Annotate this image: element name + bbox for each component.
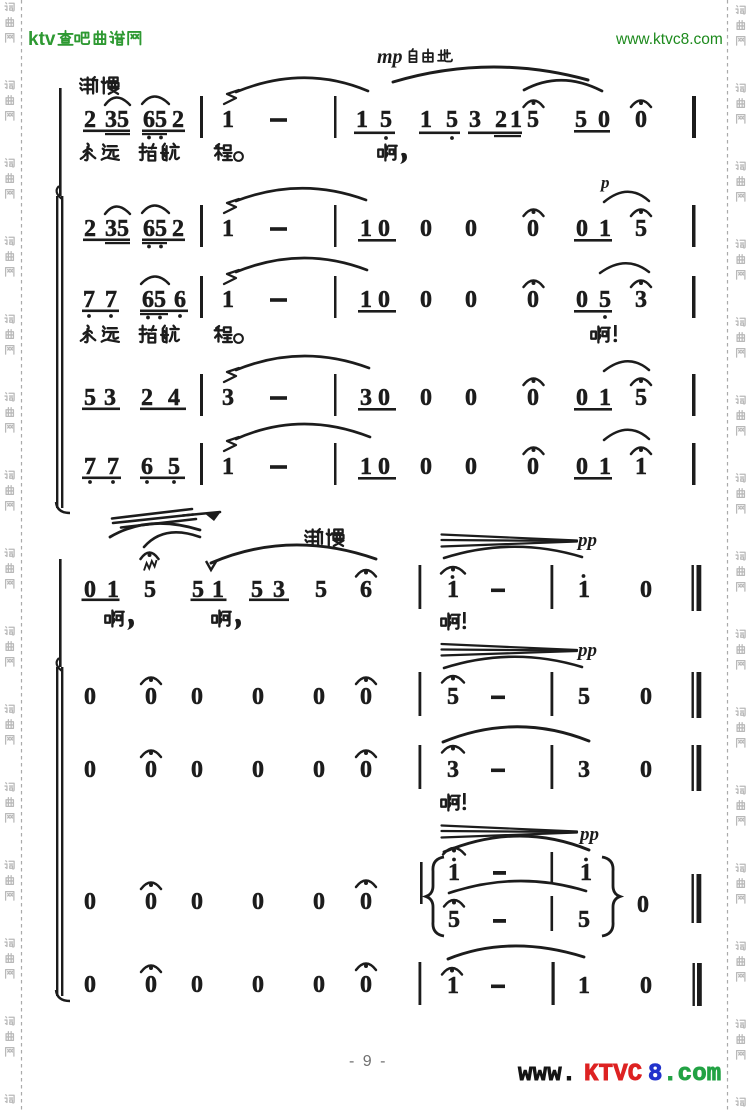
svg-text:1: 1: [578, 973, 590, 999]
svg-text:3: 3: [222, 385, 234, 411]
svg-text:8: 8: [648, 1061, 663, 1088]
svg-text:0: 0: [313, 684, 325, 710]
svg-text:3: 3: [447, 757, 459, 783]
svg-text:6: 6: [360, 577, 372, 603]
svg-text:2: 2: [141, 385, 153, 411]
svg-text:65: 65: [142, 287, 166, 313]
svg-text:0: 0: [640, 973, 652, 999]
svg-text:1: 1: [599, 216, 611, 242]
svg-text:pp: pp: [576, 640, 597, 661]
svg-text:5: 5: [315, 577, 327, 603]
svg-text:.com: .com: [663, 1061, 721, 1088]
svg-text:0: 0: [640, 684, 652, 710]
svg-text:1: 1: [222, 216, 234, 242]
svg-text:1: 1: [599, 454, 611, 480]
svg-text:0: 0: [84, 889, 96, 915]
svg-text:0: 0: [145, 889, 157, 915]
svg-text:0: 0: [252, 684, 264, 710]
svg-text:1: 1: [635, 454, 647, 480]
svg-text:0: 0: [84, 757, 96, 783]
svg-text:0: 0: [576, 216, 588, 242]
svg-text:0: 0: [313, 757, 325, 783]
svg-text:3: 3: [635, 287, 647, 313]
svg-text:1: 1: [447, 973, 459, 999]
svg-text:7: 7: [84, 454, 96, 480]
svg-text:2: 2: [84, 216, 96, 242]
svg-text:4: 4: [168, 385, 180, 411]
svg-text:5: 5: [84, 385, 96, 411]
svg-text:1: 1: [356, 107, 368, 133]
svg-text:1: 1: [222, 454, 234, 480]
svg-text:0: 0: [465, 216, 477, 242]
svg-text:www.: www.: [518, 1061, 576, 1088]
svg-text:0: 0: [637, 892, 649, 918]
svg-text:pp: pp: [578, 824, 599, 845]
svg-text:5: 5: [447, 684, 459, 710]
svg-text:5: 5: [144, 577, 156, 603]
svg-text:1: 1: [447, 577, 459, 603]
svg-text:1: 1: [222, 107, 234, 133]
svg-text:0: 0: [252, 972, 264, 998]
svg-text:- 9 -: - 9 -: [349, 1053, 387, 1070]
svg-text:6: 6: [174, 287, 186, 313]
svg-text:65: 65: [143, 107, 167, 133]
svg-text:0: 0: [360, 889, 372, 915]
svg-text:0: 0: [465, 385, 477, 411]
svg-text:0: 0: [378, 216, 390, 242]
svg-text:5: 5: [599, 287, 611, 313]
svg-text:2: 2: [495, 107, 507, 133]
svg-text:mp: mp: [377, 46, 403, 68]
svg-text:5: 5: [380, 107, 392, 133]
svg-text:0: 0: [252, 757, 264, 783]
svg-text:0: 0: [313, 889, 325, 915]
svg-text:ktv: ktv: [28, 29, 56, 50]
svg-text:65: 65: [143, 216, 167, 242]
svg-text:7: 7: [105, 287, 117, 313]
svg-text:0: 0: [576, 287, 588, 313]
svg-text:2: 2: [84, 107, 96, 133]
svg-text:0: 0: [378, 385, 390, 411]
svg-text:5: 5: [635, 216, 647, 242]
svg-text:1: 1: [360, 287, 372, 313]
svg-text:1: 1: [510, 107, 522, 133]
svg-text:0: 0: [635, 107, 647, 133]
svg-text:0: 0: [191, 684, 203, 710]
svg-text:35: 35: [105, 107, 129, 133]
svg-text:0: 0: [640, 757, 652, 783]
svg-text:0: 0: [145, 684, 157, 710]
svg-text:2: 2: [172, 216, 184, 242]
svg-text:6: 6: [141, 454, 153, 480]
svg-text:3: 3: [360, 385, 372, 411]
svg-text:p: p: [599, 173, 610, 192]
svg-text:5: 5: [578, 684, 590, 710]
svg-text:3: 3: [469, 107, 481, 133]
svg-text:0: 0: [420, 287, 432, 313]
svg-text:0: 0: [360, 972, 372, 998]
svg-text:7: 7: [107, 454, 119, 480]
svg-text:0: 0: [191, 972, 203, 998]
svg-text:pp: pp: [576, 530, 597, 551]
svg-text:1: 1: [578, 577, 590, 603]
svg-text:2: 2: [172, 107, 184, 133]
svg-text:1: 1: [448, 860, 460, 886]
svg-text:0: 0: [465, 454, 477, 480]
svg-text:0: 0: [84, 684, 96, 710]
svg-text:1: 1: [599, 385, 611, 411]
svg-text:0: 0: [252, 889, 264, 915]
svg-text:0: 0: [576, 454, 588, 480]
svg-text:0: 0: [640, 577, 652, 603]
svg-text:0: 0: [360, 757, 372, 783]
svg-text:0: 0: [313, 972, 325, 998]
svg-text:www.ktvc8.com: www.ktvc8.com: [615, 31, 723, 48]
svg-text:0: 0: [527, 454, 539, 480]
svg-text:0: 0: [527, 287, 539, 313]
svg-text:0: 0: [191, 757, 203, 783]
svg-text:0: 0: [527, 216, 539, 242]
svg-text:0: 0: [378, 287, 390, 313]
svg-text:1: 1: [420, 107, 432, 133]
svg-text:5: 5: [527, 107, 539, 133]
svg-text:7: 7: [83, 287, 95, 313]
svg-text:5: 5: [446, 107, 458, 133]
svg-text:0: 0: [527, 385, 539, 411]
svg-text:1: 1: [580, 860, 592, 886]
svg-text:KTVC: KTVC: [584, 1061, 642, 1088]
svg-text:0: 0: [145, 972, 157, 998]
svg-text:0: 0: [84, 972, 96, 998]
svg-text:1: 1: [222, 287, 234, 313]
svg-text:0: 0: [420, 385, 432, 411]
svg-text:0: 0: [378, 454, 390, 480]
svg-text:5: 5: [575, 107, 587, 133]
svg-text:1: 1: [360, 454, 372, 480]
svg-text:0: 0: [145, 757, 157, 783]
svg-text:35: 35: [105, 216, 129, 242]
svg-text:3: 3: [104, 385, 116, 411]
svg-text:5: 5: [635, 385, 647, 411]
svg-text:5: 5: [578, 907, 590, 933]
svg-text:5: 5: [168, 454, 180, 480]
svg-text:0: 0: [420, 216, 432, 242]
svg-text:5: 5: [448, 907, 460, 933]
svg-text:0: 0: [191, 889, 203, 915]
svg-text:0: 0: [576, 385, 588, 411]
svg-text:0: 0: [465, 287, 477, 313]
svg-text:0: 0: [598, 107, 610, 133]
svg-text:3: 3: [578, 757, 590, 783]
svg-text:0: 0: [360, 684, 372, 710]
svg-text:1: 1: [360, 216, 372, 242]
svg-text:0: 0: [420, 454, 432, 480]
